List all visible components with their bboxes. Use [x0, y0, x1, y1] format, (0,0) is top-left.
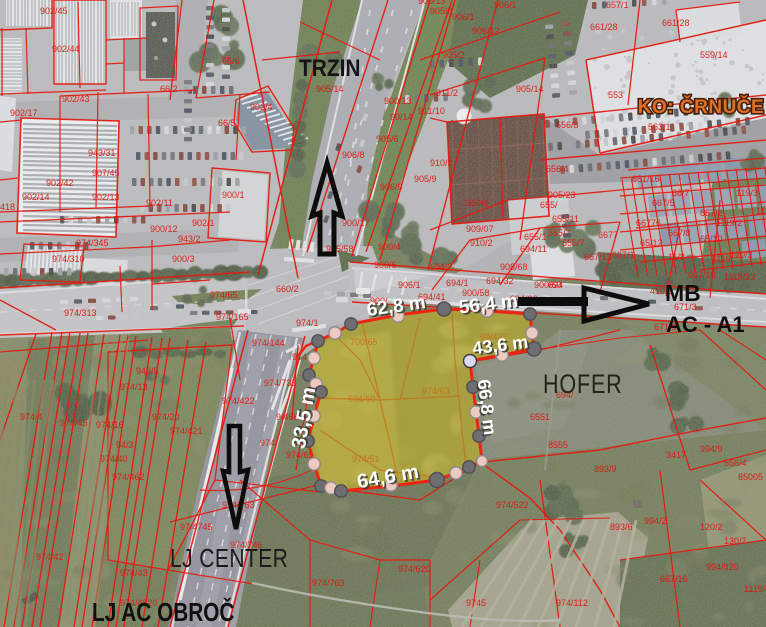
svg-text:8555: 8555: [548, 440, 568, 450]
svg-text:974/63: 974/63: [422, 386, 450, 396]
svg-text:667/5: 667/5: [652, 198, 675, 208]
svg-text:900/3: 900/3: [172, 254, 195, 264]
svg-text:902/44: 902/44: [52, 44, 80, 54]
svg-text:900/17: 900/17: [342, 218, 370, 228]
svg-text:655/11: 655/11: [552, 214, 579, 224]
svg-text:974/45: 974/45: [60, 418, 88, 428]
svg-text:974/165: 974/165: [216, 312, 249, 322]
svg-text:HOFER: HOFER: [543, 370, 623, 400]
svg-text:1118/23: 1118/23: [724, 272, 755, 282]
svg-text:9745: 9745: [466, 598, 486, 608]
svg-text:119/3: 119/3: [736, 188, 758, 198]
svg-text:661/28: 661/28: [662, 18, 690, 28]
svg-text:902/14: 902/14: [22, 192, 50, 202]
svg-text:943/2: 943/2: [178, 234, 201, 244]
svg-text:902/4: 902/4: [250, 102, 273, 112]
svg-text:994/820: 994/820: [706, 562, 739, 572]
svg-text:700/65: 700/65: [350, 337, 378, 347]
svg-text:902/11: 902/11: [146, 198, 173, 208]
svg-text:900/12: 900/12: [150, 224, 178, 234]
svg-text:943/5: 943/5: [136, 366, 159, 376]
svg-text:559/14: 559/14: [700, 50, 728, 60]
svg-text:905/9: 905/9: [414, 174, 437, 184]
svg-text:LJ AC OBROČ: LJ AC OBROČ: [92, 597, 234, 627]
svg-text:893/6: 893/6: [610, 522, 633, 532]
svg-text:906/12: 906/12: [472, 26, 500, 36]
svg-text:694: 694: [548, 280, 563, 290]
svg-text:651/16: 651/16: [632, 174, 660, 184]
svg-text:994/9: 994/9: [700, 444, 723, 454]
svg-text:994/2: 994/2: [644, 516, 667, 526]
svg-text:905/14: 905/14: [516, 84, 544, 94]
svg-text:974/112: 974/112: [556, 598, 588, 608]
svg-text:900/6: 900/6: [374, 260, 397, 270]
svg-text:906/8: 906/8: [342, 150, 365, 160]
svg-text:655/1: 655/1: [524, 232, 547, 242]
svg-text:974/620: 974/620: [398, 564, 431, 574]
svg-text:974/763: 974/763: [312, 578, 345, 588]
svg-text:660/2: 660/2: [276, 284, 299, 294]
svg-text:667/12: 667/12: [584, 252, 612, 262]
svg-text:130/7: 130/7: [724, 536, 747, 546]
svg-text:900/13: 900/13: [384, 96, 412, 106]
svg-text:1119/2: 1119/2: [716, 218, 742, 228]
svg-text:974/43: 974/43: [120, 568, 148, 578]
svg-text:694/60: 694/60: [348, 394, 376, 404]
svg-text:907/45: 907/45: [92, 168, 120, 178]
svg-text:120/3: 120/3: [730, 250, 753, 260]
svg-text:908/68: 908/68: [500, 262, 528, 272]
svg-text:66/6: 66/6: [222, 56, 240, 66]
svg-text:694/32: 694/32: [486, 276, 514, 286]
svg-text:656/4: 656/4: [546, 164, 569, 174]
svg-text:90/14: 90/14: [390, 112, 413, 122]
svg-text:97/4745: 97/4745: [180, 522, 213, 532]
svg-text:974/51: 974/51: [352, 454, 380, 464]
svg-text:906/9: 906/9: [380, 182, 403, 192]
svg-text:867/2: 867/2: [700, 208, 723, 218]
svg-text:902/1: 902/1: [192, 218, 215, 228]
svg-text:66776: 66776: [636, 218, 661, 228]
svg-text:656/3: 656/3: [556, 120, 579, 130]
svg-text:667/8: 667/8: [668, 228, 691, 238]
svg-text:553: 553: [608, 90, 623, 100]
svg-text:910/3: 910/3: [430, 158, 453, 168]
svg-text:974/20: 974/20: [152, 412, 180, 422]
svg-text:556/4: 556/4: [724, 458, 747, 468]
svg-text:3417: 3417: [666, 450, 686, 460]
svg-text:900/4: 900/4: [378, 242, 401, 252]
svg-text:910/2: 910/2: [470, 238, 493, 248]
svg-text:657/1: 657/1: [606, 0, 629, 10]
svg-text:694/1: 694/1: [446, 278, 469, 288]
svg-text:910/4: 910/4: [466, 198, 489, 208]
svg-text:906/1: 906/1: [494, 0, 517, 10]
svg-text:974/733: 974/733: [264, 378, 297, 388]
svg-text:974/422: 974/422: [222, 396, 255, 406]
svg-text:85005: 85005: [738, 472, 763, 482]
svg-text:974/421: 974/421: [170, 426, 203, 436]
svg-text:LJ CENTER: LJ CENTER: [170, 545, 288, 574]
svg-text:66/7: 66/7: [672, 188, 690, 198]
svg-text:TRZIN: TRZIN: [299, 55, 360, 82]
svg-text:974/16: 974/16: [96, 420, 124, 430]
svg-text:902/42: 902/42: [46, 178, 74, 188]
svg-text:667/10: 667/10: [688, 270, 716, 280]
svg-text:902/43: 902/43: [62, 94, 90, 104]
svg-text:563/1: 563/1: [648, 122, 671, 132]
svg-text:555/7: 555/7: [548, 228, 571, 238]
svg-text:902/45: 902/45: [40, 6, 68, 16]
svg-text:906/1: 906/1: [398, 280, 421, 290]
svg-text:694/11: 694/11: [520, 244, 547, 254]
svg-text:943/31: 943/31: [88, 148, 116, 158]
svg-text:911/2: 911/2: [436, 88, 458, 98]
svg-text:555/7: 555/7: [562, 238, 585, 248]
svg-text:66/5: 66/5: [218, 118, 236, 128]
svg-text:974/522: 974/522: [496, 500, 529, 510]
svg-text:11/8: 11/8: [668, 252, 685, 262]
svg-text:905/2: 905/2: [442, 50, 465, 60]
svg-text:974/1: 974/1: [296, 318, 319, 328]
svg-text:974/65: 974/65: [210, 290, 238, 300]
svg-text:418: 418: [0, 202, 15, 212]
svg-text:900/1: 900/1: [222, 190, 245, 200]
svg-text:AC - A1: AC - A1: [666, 312, 745, 337]
svg-text:667/16: 667/16: [660, 574, 688, 584]
svg-text:667/1: 667/1: [612, 250, 635, 260]
svg-text:KO: ČRNUČE: KO: ČRNUČE: [638, 96, 764, 118]
svg-text:974/: 974/: [260, 438, 278, 448]
svg-text:974/144: 974/144: [252, 338, 285, 348]
svg-text:974/13: 974/13: [120, 382, 148, 392]
svg-text:974/462: 974/462: [112, 472, 145, 482]
svg-text:65/10: 65/10: [700, 234, 723, 244]
svg-text:974/42: 974/42: [36, 552, 64, 562]
svg-text:661/28: 661/28: [590, 22, 618, 32]
svg-text:6551: 6551: [530, 412, 550, 422]
svg-text:911/10: 911/10: [418, 106, 445, 116]
svg-text:902/13: 902/13: [92, 192, 120, 202]
svg-text:974/4: 974/4: [20, 412, 43, 422]
svg-text:6677: 6677: [598, 230, 618, 240]
svg-text:1119: 1119: [756, 206, 766, 216]
svg-text:94/3: 94/3: [116, 440, 134, 450]
svg-text:65/12: 65/12: [640, 238, 663, 248]
svg-text:974/40: 974/40: [100, 454, 128, 464]
svg-text:905/6: 905/6: [376, 134, 399, 144]
svg-text:902/17: 902/17: [10, 108, 38, 118]
svg-text:974/313: 974/313: [64, 308, 97, 318]
svg-text:655/: 655/: [540, 200, 558, 210]
svg-text:905/14: 905/14: [316, 84, 344, 94]
svg-text:893/9: 893/9: [594, 464, 617, 474]
svg-text:900/13: 900/13: [418, 0, 446, 6]
svg-text:1119/4: 1119/4: [744, 584, 766, 594]
svg-text:906/1: 906/1: [452, 12, 475, 22]
svg-text:974/345: 974/345: [76, 238, 109, 248]
svg-text:905/23: 905/23: [548, 190, 576, 200]
svg-text:909/07: 909/07: [466, 224, 494, 234]
svg-text:694/2: 694/2: [430, 262, 453, 272]
svg-text:974/310: 974/310: [52, 254, 85, 264]
svg-text:120/2: 120/2: [700, 522, 723, 532]
svg-text:MB: MB: [665, 280, 701, 306]
svg-text:66/2: 66/2: [160, 84, 178, 94]
svg-text:905/8: 905/8: [430, 6, 453, 16]
